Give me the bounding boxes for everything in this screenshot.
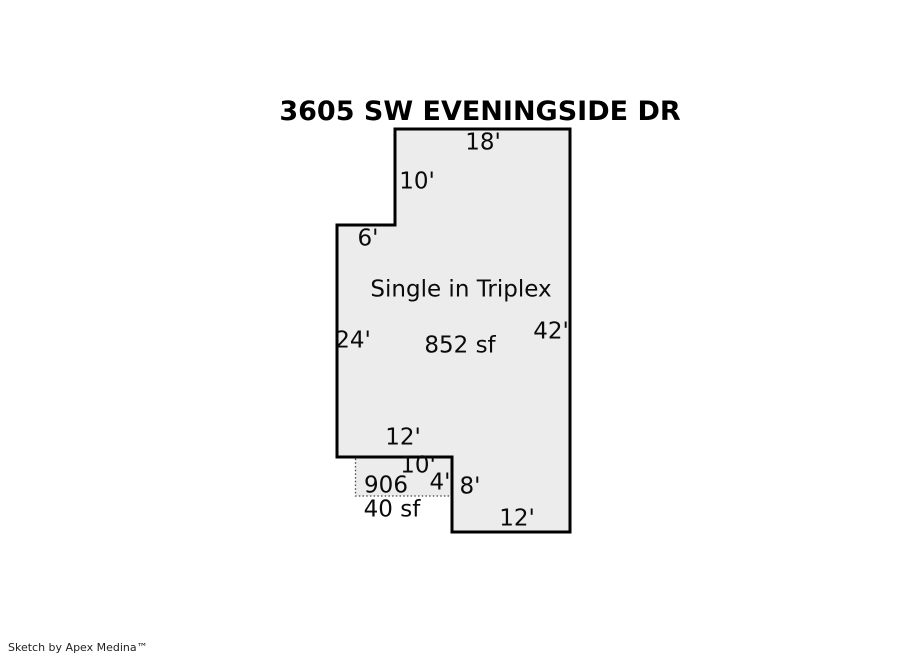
porch-number-label: 906 (364, 475, 408, 498)
porch-area-label: 40 sf (364, 499, 421, 522)
floorplan-drawing (0, 0, 900, 660)
dimension-label-bottom: 12' (499, 508, 535, 531)
dimension-label-bottom-main: 12' (385, 427, 421, 450)
dimension-label-right: 42' (533, 321, 569, 344)
dimension-label-left: 24' (335, 330, 371, 353)
dimension-label-step: 6' (358, 228, 379, 251)
main-area-label: 852 sf (424, 335, 495, 358)
sketch-page: 3605 SW EVENINGSIDE DR 18' 10' 6' Single… (0, 0, 900, 660)
dimension-label-porch-right: 4' (430, 472, 451, 495)
dimension-label-top: 18' (465, 132, 501, 155)
credit-text: Sketch by Apex Medina™ (8, 641, 148, 654)
unit-name-label: Single in Triplex (370, 279, 551, 302)
dimension-label-upper-left: 10' (399, 171, 435, 194)
dimension-label-lower-right: 8' (460, 476, 481, 499)
